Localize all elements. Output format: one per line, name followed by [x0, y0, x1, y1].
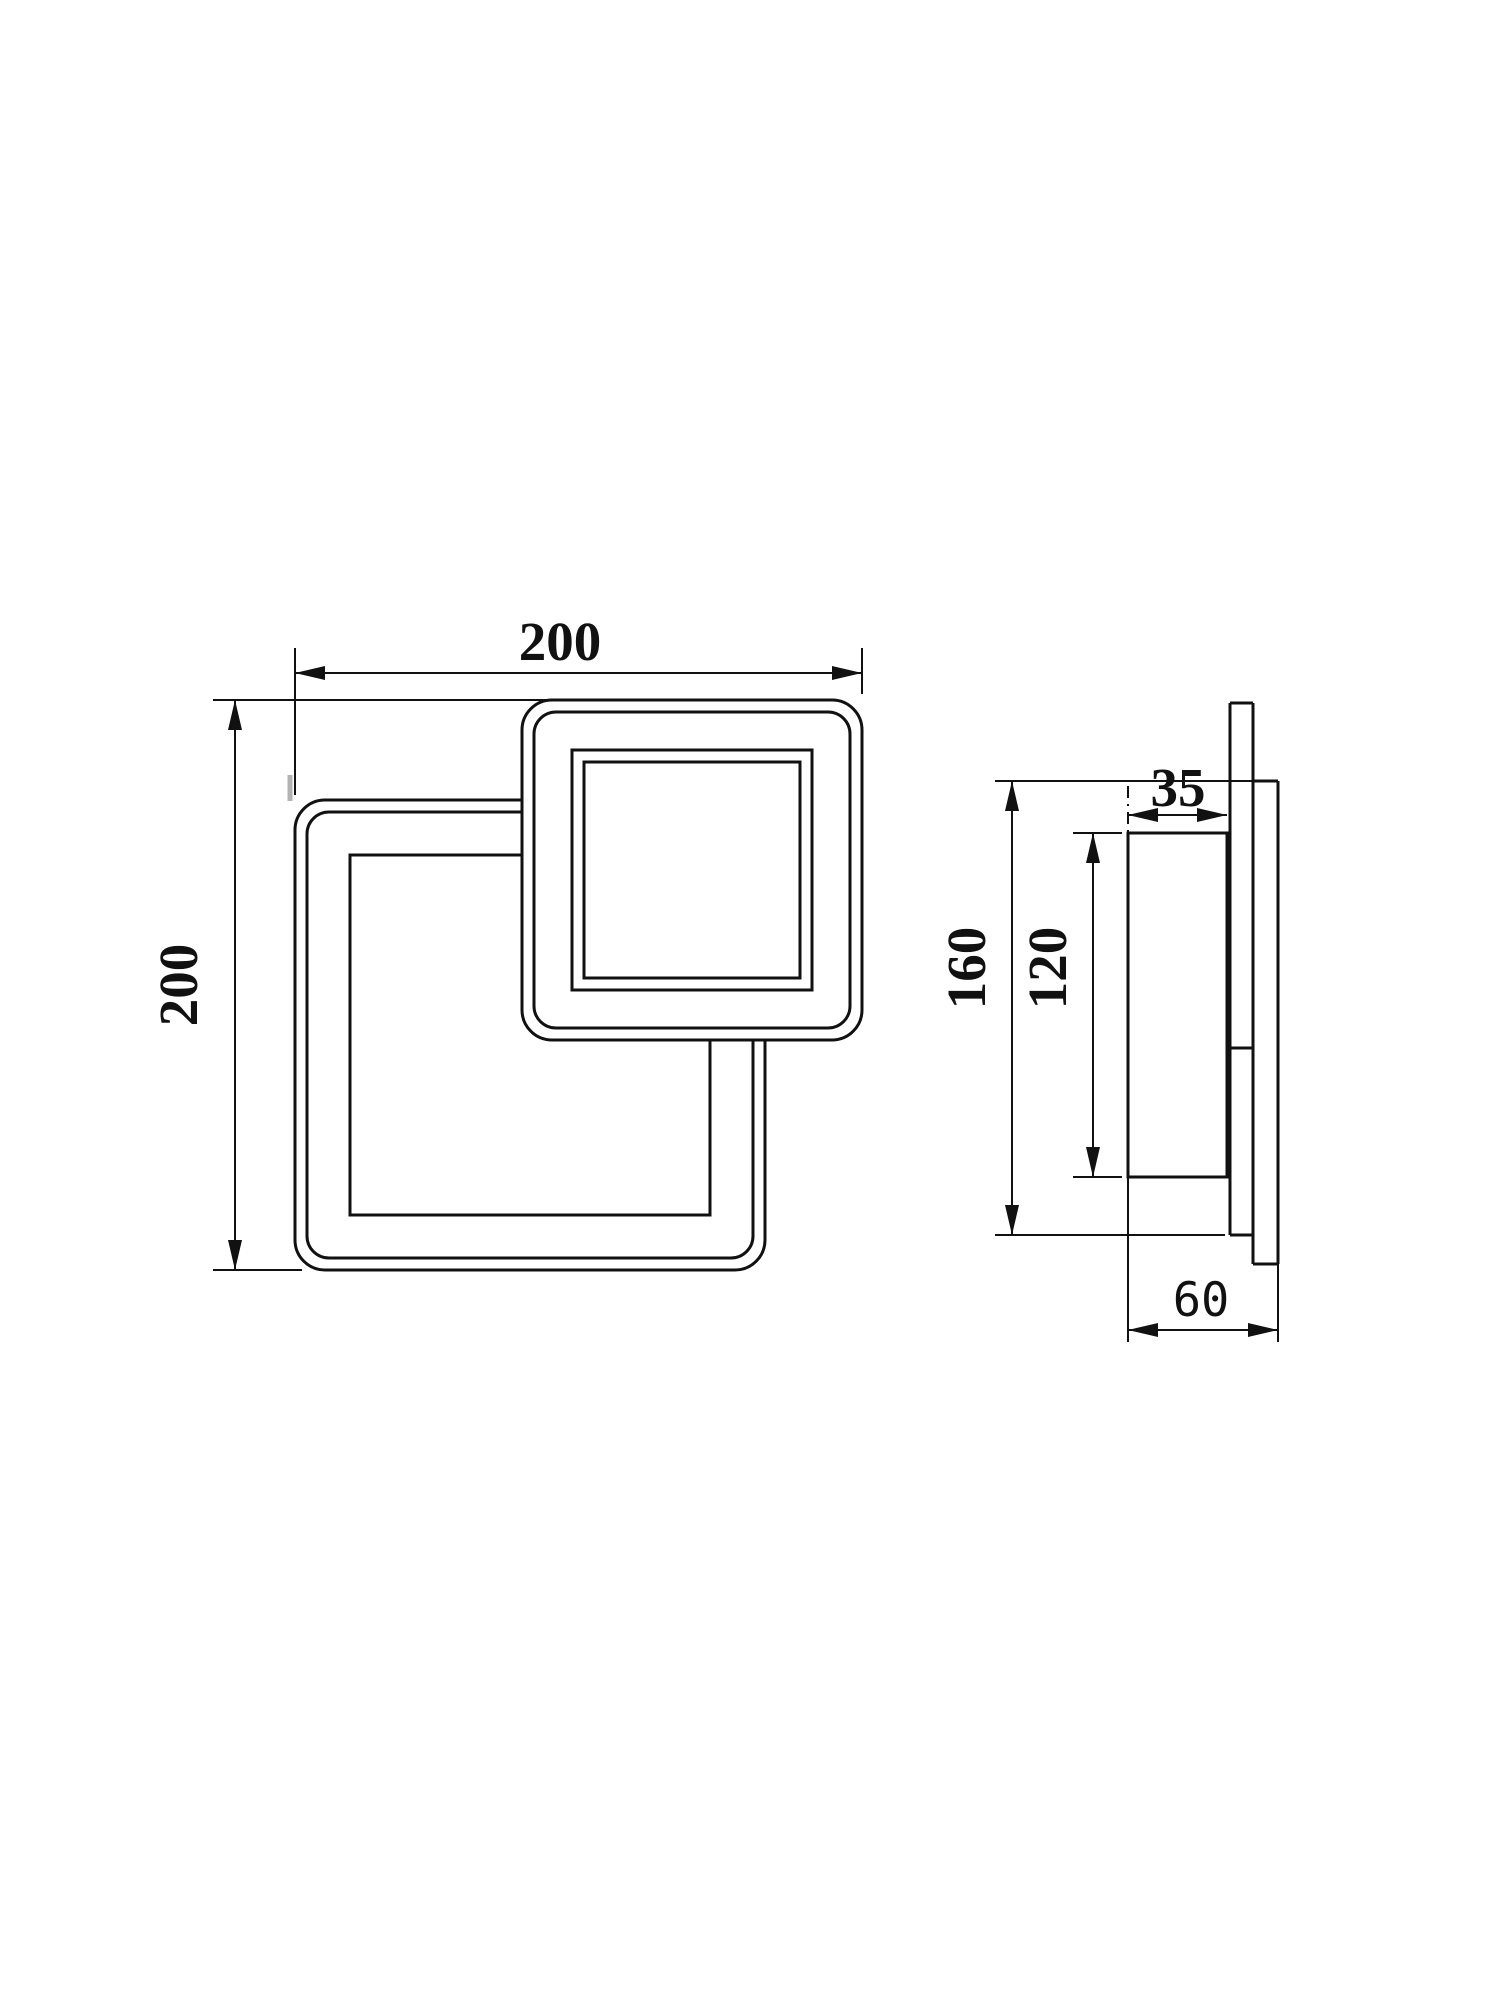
total-depth-dimension: 60 [1128, 1177, 1278, 1342]
front-bar-profile [1230, 703, 1253, 1264]
arrowhead-bottom [228, 1240, 242, 1270]
front-height-label: 200 [148, 944, 209, 1027]
technical-drawing-canvas: 200 200 [0, 0, 1500, 2000]
body-profile [1128, 833, 1227, 1177]
arrowhead-bottom [1086, 1147, 1100, 1177]
arrowhead-top [228, 700, 242, 730]
arrowhead-bottom [1005, 1205, 1019, 1235]
arrowhead-top [1005, 781, 1019, 811]
arrowhead-right [1248, 1323, 1278, 1337]
body-depth-label: 35 [1151, 757, 1206, 818]
side-view: 35 160 120 [936, 703, 1278, 1342]
body-depth-dimension: 35 [1128, 757, 1227, 833]
overall-height-label: 160 [936, 927, 997, 1010]
body-height-dimension: 120 [1017, 833, 1122, 1177]
arrowhead-top [1086, 833, 1100, 863]
total-depth-label: 60 [1173, 1273, 1230, 1328]
arrowhead-left [1128, 1323, 1158, 1337]
technical-drawing-page: 200 200 [0, 0, 1500, 2000]
body-height-label: 120 [1017, 927, 1078, 1010]
front-view: 200 200 [148, 611, 862, 1270]
arrowhead-right [832, 666, 862, 680]
wall-plate-profile [1253, 781, 1278, 1264]
front-width-label: 200 [519, 611, 602, 672]
arrowhead-left [295, 666, 325, 680]
